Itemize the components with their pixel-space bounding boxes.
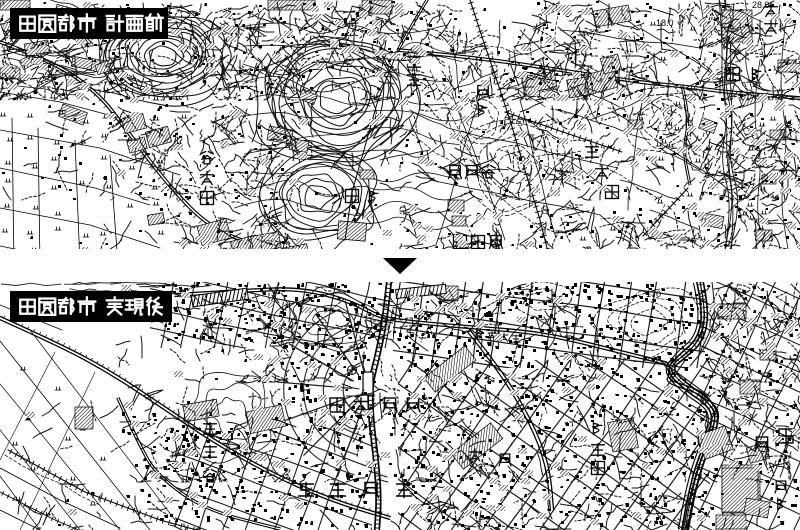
svg-text:18.0: 18.0 bbox=[656, 18, 674, 28]
svg-text:170: 170 bbox=[646, 289, 661, 299]
svg-text:250: 250 bbox=[374, 322, 389, 332]
